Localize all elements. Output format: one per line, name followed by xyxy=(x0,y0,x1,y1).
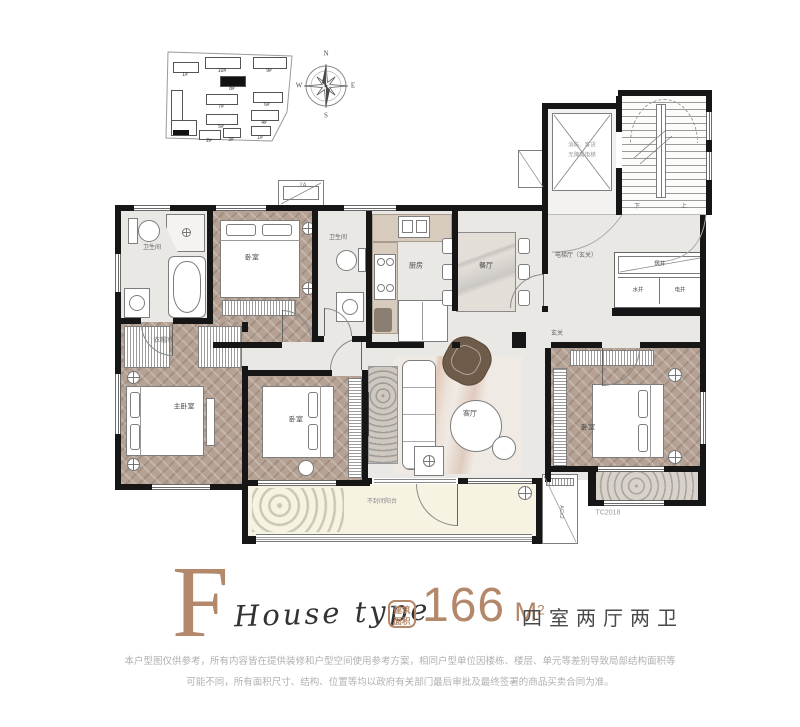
label-bedroom-mid: 卧室 xyxy=(289,417,303,424)
site-building-name-chip xyxy=(173,130,189,135)
wall xyxy=(594,500,604,506)
vent-shaft xyxy=(518,150,544,188)
bed-bench xyxy=(206,398,215,446)
pillow xyxy=(130,392,140,418)
kitchen-bin xyxy=(374,308,392,332)
door-leaf xyxy=(457,484,458,526)
label-ac-tag: ACx2 xyxy=(557,505,563,518)
disclaimer-line1: 本户型图仅供参考，所有内容皆在提供装修和户型空间使用参考方案，相同户型单位因楼栋… xyxy=(100,652,700,673)
compass-north-label: N xyxy=(323,51,328,58)
wall xyxy=(362,478,372,484)
label-wind-shaft: 风井 xyxy=(654,262,665,268)
wall xyxy=(173,318,213,324)
label-elevator-hall: 电梯厅（玄关） xyxy=(555,253,597,259)
wall xyxy=(207,211,213,324)
label-bay-window-tag: 2A xyxy=(300,183,307,189)
disclaimer: 本户型图仅供参考，所有内容皆在提供装修和户型空间使用参考方案，相同户型单位因楼栋… xyxy=(100,652,700,694)
door-leaf xyxy=(172,324,173,356)
pillow xyxy=(308,424,318,450)
pillow xyxy=(638,390,648,418)
burner xyxy=(386,258,394,266)
nightstand-lamp xyxy=(668,450,682,464)
floor-drain xyxy=(518,486,532,500)
pillow xyxy=(130,424,140,450)
toilet-tank xyxy=(358,248,366,272)
wall xyxy=(618,90,712,96)
label-bedroom-right: 卧室 xyxy=(581,425,595,432)
stool xyxy=(298,460,314,476)
compass-rose-icon xyxy=(298,58,354,114)
bed-headline xyxy=(320,386,321,458)
burner xyxy=(377,284,385,292)
site-building-label: 4# xyxy=(261,121,267,126)
wall xyxy=(545,348,551,482)
site-building-label: 10# xyxy=(218,69,226,74)
compass: N S W E xyxy=(298,50,354,120)
label-balcony: 不封闭阳台 xyxy=(367,499,397,505)
site-plan: 1# 10# 9# 8# 7# 6# 5# 4# 3# 2# 1# xyxy=(163,50,295,144)
sliding-door-track xyxy=(374,482,456,483)
house-type-letter: F xyxy=(172,552,242,656)
wall xyxy=(551,342,602,348)
site-building-label: 9# xyxy=(266,69,272,74)
pillow xyxy=(262,224,292,236)
sink-basin xyxy=(342,299,358,315)
wall xyxy=(248,370,332,376)
site-building-label: 1# xyxy=(257,136,263,141)
wardrobe-bedroom-mid xyxy=(348,378,362,478)
site-building-label: 7# xyxy=(218,105,224,110)
window xyxy=(152,484,210,490)
label-foyer: 玄关 xyxy=(551,331,563,337)
dining-table xyxy=(456,232,516,312)
wall xyxy=(242,366,248,486)
area-badge-line2: 面积 xyxy=(390,616,414,627)
wall xyxy=(121,318,141,324)
site-building-label: 3# xyxy=(228,138,234,143)
window xyxy=(115,254,121,292)
side-round-table xyxy=(492,436,516,460)
shower-drain xyxy=(182,228,191,237)
wardrobe-bedroom-right-side xyxy=(553,368,567,466)
door-leaf xyxy=(282,310,283,342)
window xyxy=(598,466,664,472)
toilet-tank xyxy=(128,218,138,244)
area-badge-line1: 建筑 xyxy=(390,605,414,616)
wall xyxy=(242,322,248,332)
compass-west-label: W xyxy=(296,83,303,90)
floorplan-page: 1# 10# 9# 8# 7# 6# 5# 4# 3# 2# 1# xyxy=(0,0,800,727)
bed-headline xyxy=(140,386,141,456)
wall xyxy=(213,342,282,348)
label-bedroom-top: 卧室 xyxy=(245,255,259,262)
sink-basin xyxy=(129,295,145,311)
area-badge: 建筑 面积 xyxy=(388,600,416,628)
label-water-shaft: 水井 xyxy=(632,288,643,294)
pillow xyxy=(308,392,318,418)
balcony-greenery xyxy=(252,488,344,532)
wall xyxy=(115,434,121,490)
wall xyxy=(542,103,548,215)
wall xyxy=(512,332,526,348)
wall xyxy=(264,205,344,211)
wall xyxy=(452,342,460,348)
window xyxy=(706,152,712,180)
window xyxy=(134,205,170,211)
pillow xyxy=(638,424,648,452)
wall xyxy=(366,211,372,342)
compass-south-label: S xyxy=(324,113,328,120)
stair-hall-boundary xyxy=(548,214,706,215)
site-building-label: 1# xyxy=(182,73,188,78)
wall xyxy=(115,292,121,374)
bathtub-inner xyxy=(173,261,201,313)
wall xyxy=(536,484,542,544)
wall xyxy=(698,472,706,506)
wall xyxy=(366,342,424,348)
layout-summary: 四室两厅两卫 xyxy=(522,602,684,631)
label-dining: 餐厅 xyxy=(479,263,493,270)
refrigerator-divider xyxy=(422,302,423,340)
window xyxy=(258,480,336,486)
label-elevator-2: 无障碍电梯 xyxy=(568,153,596,159)
wall xyxy=(312,211,318,342)
wall xyxy=(452,211,458,311)
disclaimer-line2: 可能不同，所有面积尺寸、结构、位置等均以政府有关部门最后审批及最终签署的商品买卖… xyxy=(100,673,700,694)
nightstand-lamp xyxy=(127,371,140,384)
window xyxy=(604,500,664,506)
toilet-bowl xyxy=(138,220,160,242)
bed-headline xyxy=(650,384,651,458)
wall xyxy=(458,478,468,484)
shaft-divider xyxy=(618,277,702,278)
wall xyxy=(312,336,324,342)
label-master-bedroom: 主卧室 xyxy=(174,404,195,411)
door-leaf xyxy=(602,348,603,386)
wall xyxy=(362,370,368,480)
bed-headline xyxy=(220,240,300,241)
balcony-glazing xyxy=(256,534,532,542)
toilet-bowl xyxy=(336,250,357,271)
shaft-divider xyxy=(659,278,660,304)
pillow xyxy=(226,224,256,236)
area-value: 166 xyxy=(422,579,505,632)
wall xyxy=(115,484,152,490)
label-bath2: 卫生间 xyxy=(329,235,347,241)
site-building-label: 5# xyxy=(218,125,224,130)
label-closet: 衣帽间 xyxy=(154,338,172,344)
sliding-door-track xyxy=(374,479,456,480)
site-building-label: 6# xyxy=(264,103,270,108)
wall xyxy=(700,215,706,392)
tv-console xyxy=(368,366,398,464)
bed-right xyxy=(592,384,664,458)
burner xyxy=(386,284,394,292)
window xyxy=(216,205,266,211)
label-living: 客厅 xyxy=(463,411,477,418)
wall xyxy=(242,486,248,538)
window xyxy=(115,374,121,434)
site-building-label: 2# xyxy=(206,139,212,144)
wall xyxy=(548,103,618,109)
label-stair-up: 上 xyxy=(681,204,687,210)
nightstand-lamp xyxy=(127,458,140,471)
label-kitchen: 厨房 xyxy=(409,263,423,270)
wall xyxy=(242,536,256,544)
nightstand-lamp xyxy=(668,368,682,382)
door-leaf xyxy=(361,338,362,370)
window xyxy=(344,205,396,211)
label-corner-tag: TC2018 xyxy=(596,510,621,517)
door-leaf xyxy=(324,308,325,336)
corner-platform xyxy=(594,470,700,502)
label-elec-shaft: 电井 xyxy=(674,288,685,294)
site-building-label: 8# xyxy=(229,87,235,92)
label-elevator-1: 消防、客货 xyxy=(568,143,596,149)
door-leaf xyxy=(543,274,544,308)
kitchen-sink-bowl xyxy=(416,220,427,233)
wall xyxy=(542,306,548,312)
window xyxy=(700,392,706,444)
wall xyxy=(640,342,706,348)
label-bath1: 卫生间 xyxy=(143,245,161,251)
window xyxy=(706,112,712,140)
refrigerator xyxy=(398,300,448,342)
label-stair-down: 下 xyxy=(634,204,640,210)
wall xyxy=(616,168,622,215)
kitchen-sink-bowl xyxy=(402,220,413,233)
wall xyxy=(542,215,548,274)
wall xyxy=(612,308,706,316)
wall xyxy=(115,205,121,254)
burner xyxy=(377,258,385,266)
wall xyxy=(616,96,622,132)
wall xyxy=(664,500,698,506)
window xyxy=(468,478,532,484)
wall xyxy=(396,205,548,211)
dining-chair xyxy=(518,238,530,254)
table-lamp xyxy=(423,455,435,467)
compass-east-label: E xyxy=(351,83,355,90)
